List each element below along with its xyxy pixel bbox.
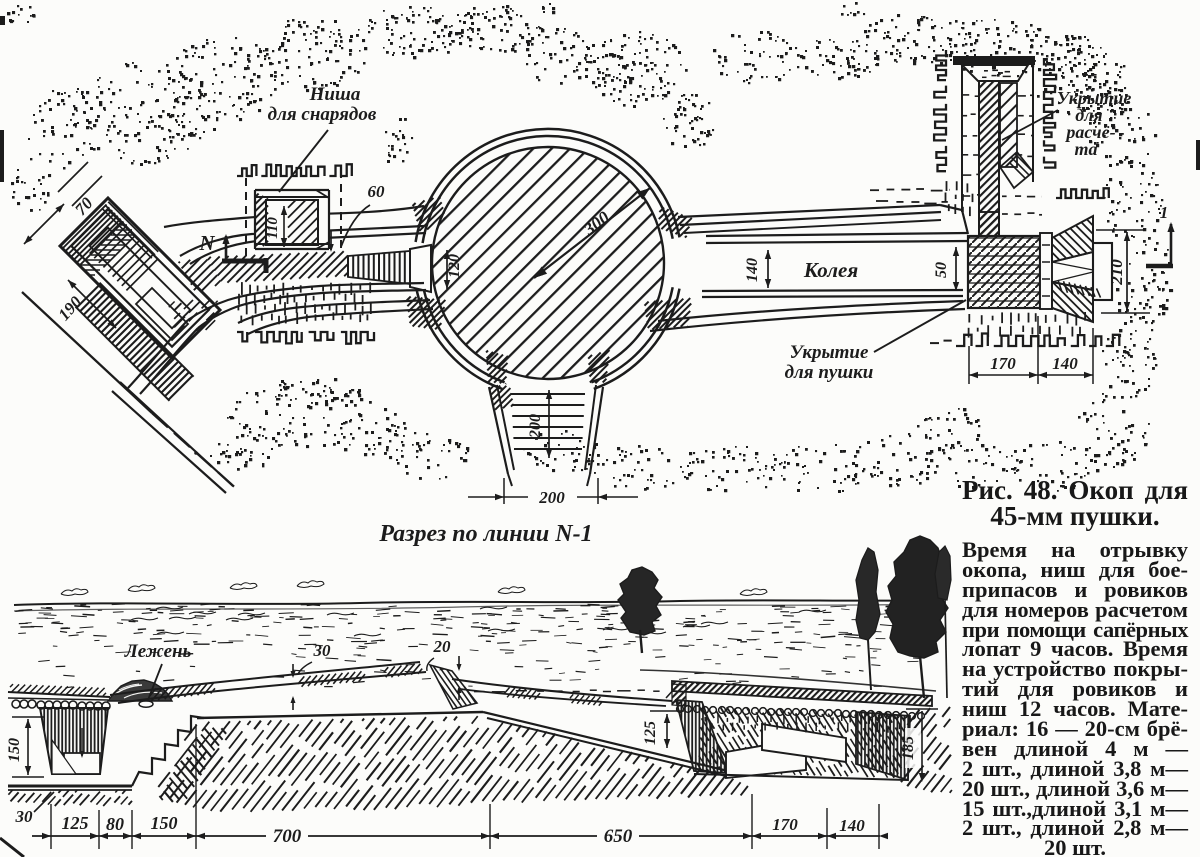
svg-text:140: 140 <box>744 258 761 282</box>
svg-text:для пушки: для пушки <box>785 362 874 383</box>
svg-text:140: 140 <box>839 816 865 835</box>
svg-text:70: 70 <box>71 193 97 219</box>
svg-text:Колея: Колея <box>803 258 859 282</box>
svg-text:210: 210 <box>1107 259 1126 286</box>
svg-text:125: 125 <box>642 721 659 745</box>
svg-text:190: 190 <box>54 292 86 324</box>
svg-text:170: 170 <box>772 815 798 834</box>
svg-text:150: 150 <box>151 813 178 833</box>
svg-text:200: 200 <box>527 414 544 439</box>
svg-text:200: 200 <box>538 488 565 507</box>
svg-text:140: 140 <box>1052 354 1078 373</box>
svg-text:60: 60 <box>368 182 386 201</box>
svg-text:80: 80 <box>106 814 124 834</box>
svg-text:700: 700 <box>273 826 302 847</box>
svg-text:125: 125 <box>62 813 89 833</box>
svg-text:20: 20 <box>433 637 452 656</box>
svg-text:30: 30 <box>15 807 34 826</box>
svg-text:650: 650 <box>604 826 633 847</box>
svg-text:110: 110 <box>265 217 281 239</box>
svg-text:для снарядов: для снарядов <box>268 104 377 125</box>
svg-text:1: 1 <box>1160 203 1169 222</box>
svg-text:170: 170 <box>990 354 1016 373</box>
svg-text:Лежень: Лежень <box>124 641 192 662</box>
svg-text:185: 185 <box>900 736 917 760</box>
svg-text:Укрытие: Укрытие <box>790 342 869 363</box>
svg-text:150: 150 <box>6 738 23 762</box>
svg-text:Ниша: Ниша <box>309 84 361 105</box>
svg-text:30: 30 <box>313 641 332 660</box>
svg-text:N: N <box>198 231 215 255</box>
svg-text:Разрез по линии N-1: Разрез по линии N-1 <box>378 521 592 547</box>
svg-text:120: 120 <box>446 254 463 278</box>
svg-text:та: та <box>1074 139 1097 159</box>
svg-text:50: 50 <box>933 262 950 278</box>
